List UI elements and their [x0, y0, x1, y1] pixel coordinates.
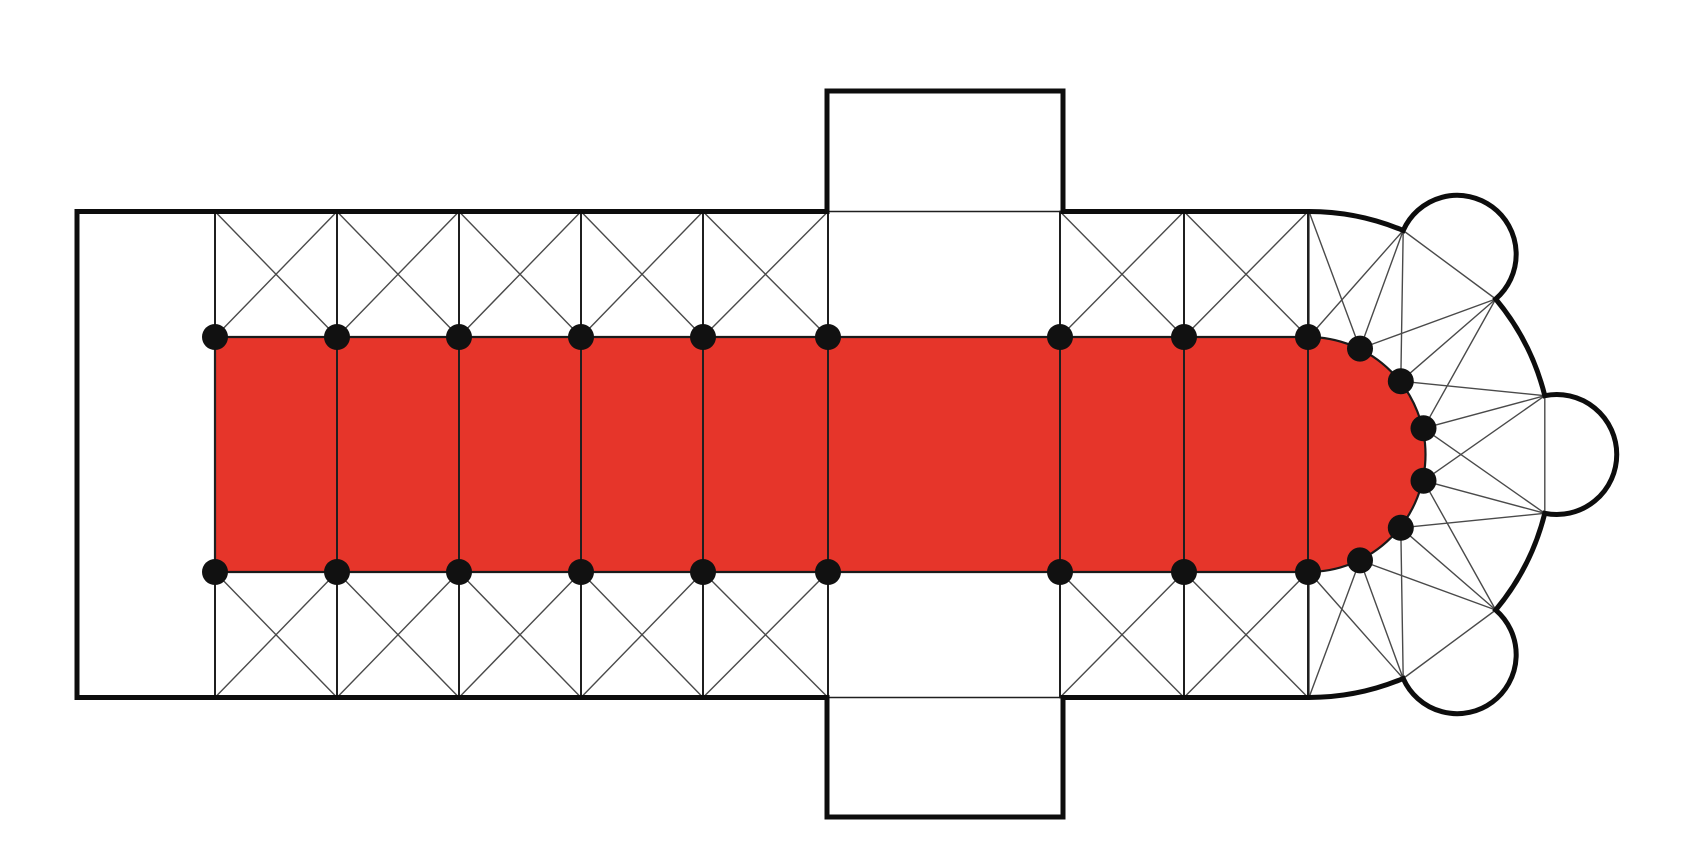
pier-dot: [815, 559, 841, 585]
pier-dot: [1411, 468, 1437, 494]
ambulatory-rib: [1360, 299, 1496, 349]
ambulatory-rib: [1401, 528, 1496, 610]
pier-dot: [1171, 559, 1197, 585]
pier-dot: [324, 324, 350, 350]
ambulatory-rib: [1424, 396, 1545, 481]
pier-dot: [1295, 559, 1321, 585]
ambulatory-rib: [1424, 428, 1545, 513]
pier-dot: [1388, 515, 1414, 541]
pier-dot: [1295, 324, 1321, 350]
ambulatory-rib: [1424, 481, 1545, 514]
pier-dot: [568, 324, 594, 350]
ambulatory-rib: [1424, 299, 1496, 428]
ambulatory-rib: [1424, 396, 1545, 429]
ambulatory-rib: [1309, 231, 1403, 338]
nave-highlight: [215, 337, 1425, 572]
pier-dot: [446, 324, 472, 350]
ambulatory-rib: [1360, 560, 1496, 610]
pier-dot: [1347, 336, 1373, 362]
pier-dot: [1388, 368, 1414, 394]
pier-dot: [1047, 559, 1073, 585]
pier-dot: [1411, 415, 1437, 441]
pier-dot: [815, 324, 841, 350]
pier-dot: [1171, 324, 1197, 350]
ambulatory-rib: [1401, 231, 1403, 382]
pier-dot: [1347, 547, 1373, 573]
church-plan-svg: [0, 0, 1701, 862]
pier-dot: [324, 559, 350, 585]
ambulatory-rib: [1309, 572, 1403, 679]
pier-dot: [690, 324, 716, 350]
pier-dot: [446, 559, 472, 585]
chapel-chord-rib: [1403, 610, 1496, 679]
pier-dot: [1047, 324, 1073, 350]
pier-dot: [568, 559, 594, 585]
floor-plan-figure: [0, 0, 1701, 862]
nave-highlight-shape: [215, 337, 1425, 572]
ambulatory-rib: [1401, 299, 1496, 381]
pier-dot: [690, 559, 716, 585]
chapel-chord-rib: [1403, 231, 1496, 300]
ambulatory-rib: [1360, 231, 1403, 349]
ambulatory-rib: [1424, 481, 1496, 610]
pier-dot: [202, 324, 228, 350]
ambulatory-rib: [1360, 560, 1403, 678]
pier-dot: [202, 559, 228, 585]
ambulatory-rib: [1401, 528, 1403, 679]
ambulatory-rib: [1401, 513, 1545, 528]
ambulatory-rib: [1401, 381, 1545, 396]
